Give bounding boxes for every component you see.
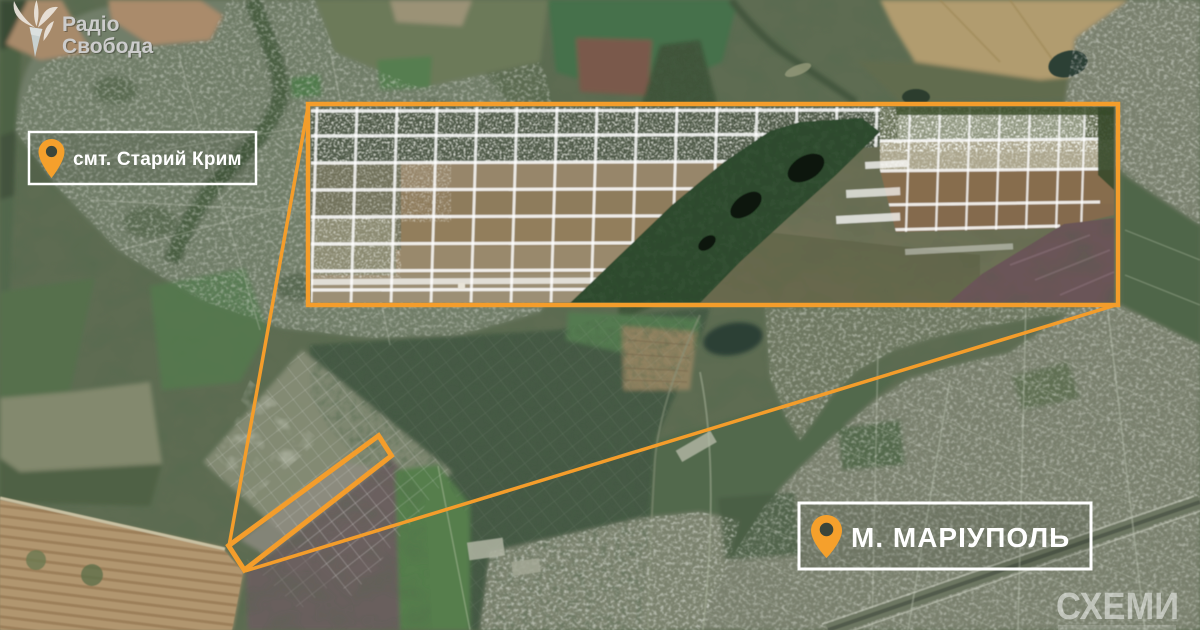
svg-text:М. МАРІУПОЛЬ: М. МАРІУПОЛЬ: [851, 522, 1070, 553]
svg-text:смт. Старий Крим: смт. Старий Крим: [73, 149, 242, 170]
svg-text:Свобода: Свобода: [62, 35, 153, 58]
svg-text:Радіо: Радіо: [62, 13, 119, 36]
svg-text:СХЕМИ: СХЕМИ: [1056, 586, 1179, 628]
